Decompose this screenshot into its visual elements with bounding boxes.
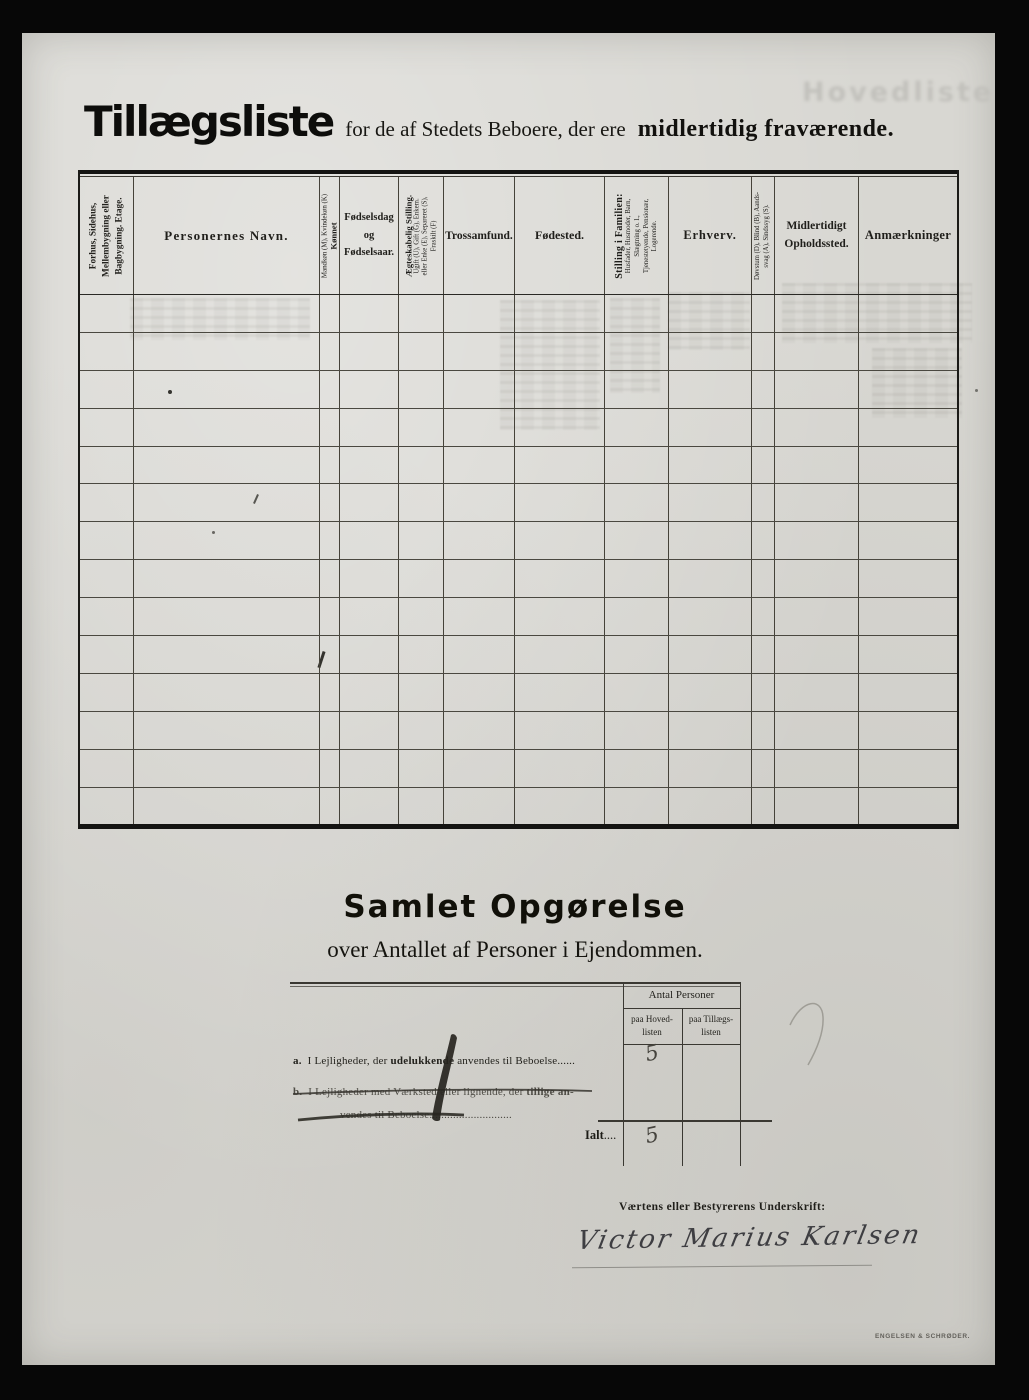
table-cell-empty	[444, 674, 515, 711]
header-line: Bagbygning. Etage.	[113, 197, 126, 274]
header-sub: Fraskilt (F)	[430, 220, 438, 251]
table-cell-empty	[320, 598, 340, 635]
table-cell-empty	[669, 598, 752, 635]
col-label-line: listen	[701, 1027, 721, 1037]
table-cell-empty	[859, 295, 957, 332]
table-cell-empty	[752, 522, 775, 559]
header-sub: Ugift (U), Gift (G), Enkem.	[413, 198, 421, 273]
table-cell-empty	[859, 598, 957, 635]
column-header-faith: Trossamfund.	[444, 177, 515, 294]
table-cell-empty	[515, 750, 605, 787]
title-word: Tillægsliste	[84, 97, 333, 146]
table-cell-empty	[605, 560, 669, 597]
table-cell-empty	[134, 598, 320, 635]
table-cell-empty	[752, 674, 775, 711]
col-label-line: paa Tillægs-	[689, 1014, 733, 1024]
table-cell-empty	[752, 788, 775, 825]
table-cell-empty	[859, 371, 957, 408]
table-cell-empty	[399, 333, 444, 370]
table-cell-empty	[752, 712, 775, 749]
row-b-prefix: b.	[293, 1086, 302, 1098]
table-cell-empty	[134, 484, 320, 521]
table-cell-empty	[605, 522, 669, 559]
table-cell-empty	[515, 560, 605, 597]
header-sub: svag (A), Sindssyg (S).	[763, 204, 772, 267]
table-cell-empty	[444, 636, 515, 673]
table-cell-empty	[320, 447, 340, 484]
header-sub: Døvstum (D), Blind (B), Aands-	[754, 192, 763, 280]
column-header-occupation: Erhverv.	[669, 177, 752, 294]
table-cell-empty	[320, 712, 340, 749]
header-label: Personernes Navn.	[164, 228, 288, 244]
table-row-empty	[80, 371, 957, 409]
table-cell-empty	[80, 636, 134, 673]
table-cell-empty	[752, 560, 775, 597]
table-cell-empty	[340, 598, 399, 635]
table-cell-empty	[515, 295, 605, 332]
table-cell-empty	[80, 598, 134, 635]
census-table: Forhus, Sidehus, Mellembygning eller Bag…	[78, 170, 959, 829]
header-main: Stilling i Familien:	[613, 193, 624, 278]
col-label-line: listen	[642, 1027, 662, 1037]
table-cell-empty	[340, 788, 399, 825]
form-page: Hovedliste Tillægsliste for de af Stedet…	[22, 33, 995, 1365]
col-label-line: paa Hoved-	[631, 1014, 673, 1024]
row-a-text: anvendes til Beboelse	[454, 1055, 557, 1067]
total-dots: ....	[604, 1128, 617, 1142]
table-cell-empty	[752, 333, 775, 370]
table-cell-empty	[515, 409, 605, 446]
header-line: Midlertidigt	[784, 218, 848, 235]
table-cell-empty	[669, 712, 752, 749]
table-cell-empty	[340, 447, 399, 484]
column-header-temporary-location: Midlertidigt Opholdssted.	[775, 177, 859, 294]
table-cell-empty	[775, 333, 859, 370]
table-cell-empty	[399, 371, 444, 408]
table-cell-empty	[752, 409, 775, 446]
row-b-text: I Lejligheder med Værksted eller lignend…	[308, 1086, 526, 1098]
table-cell-empty	[340, 333, 399, 370]
table-row-empty	[80, 750, 957, 788]
table-row-empty	[80, 447, 957, 485]
header-sub: Mandkøn (M), Kvindekøn (K)	[321, 193, 328, 277]
signature-label: Værtens eller Bestyrerens Underskrift:	[619, 1201, 826, 1213]
header-sub: Slægtning o. l.,	[633, 215, 642, 256]
summary-table-line	[740, 982, 741, 1166]
ink-speck	[975, 389, 978, 392]
table-cell-empty	[775, 750, 859, 787]
table-cell-empty	[134, 333, 320, 370]
table-cell-empty	[80, 295, 134, 332]
table-cell-empty	[134, 788, 320, 825]
table-cell-empty	[399, 598, 444, 635]
table-cell-empty	[320, 674, 340, 711]
table-cell-empty	[775, 598, 859, 635]
table-cell-empty	[752, 371, 775, 408]
table-cell-empty	[859, 712, 957, 749]
table-cell-empty	[320, 484, 340, 521]
table-cell-empty	[80, 333, 134, 370]
table-cell-empty	[320, 560, 340, 597]
total-word: Ialt	[585, 1128, 604, 1142]
table-cell-empty	[859, 560, 957, 597]
table-cell-empty	[775, 447, 859, 484]
table-cell-empty	[752, 636, 775, 673]
table-cell-empty	[444, 788, 515, 825]
summary-subheading: over Antallet af Personer i Ejendommen.	[290, 937, 740, 963]
table-row-empty	[80, 788, 957, 825]
table-cell-empty	[605, 788, 669, 825]
table-cell-empty	[80, 674, 134, 711]
header-line: og	[344, 227, 394, 245]
summary-row-b-line2: vendes til Beboelse.....................…	[340, 1109, 512, 1121]
table-cell-empty	[859, 674, 957, 711]
table-cell-empty	[515, 712, 605, 749]
table-cell-empty	[80, 409, 134, 446]
table-cell-empty	[515, 447, 605, 484]
table-cell-empty	[444, 409, 515, 446]
table-cell-empty	[320, 522, 340, 559]
table-cell-empty	[669, 560, 752, 597]
table-cell-empty	[515, 522, 605, 559]
table-cell-empty	[134, 522, 320, 559]
header-sub: Husfader, Husmoder, Barn,	[624, 198, 633, 272]
table-row-empty	[80, 409, 957, 447]
table-row-empty	[80, 484, 957, 522]
table-cell-empty	[775, 788, 859, 825]
column-header-birthplace: Fødested.	[515, 177, 605, 294]
header-label: Erhverv.	[683, 228, 736, 243]
table-cell-empty	[752, 750, 775, 787]
table-cell-empty	[80, 788, 134, 825]
table-cell-empty	[775, 484, 859, 521]
table-cell-empty	[399, 522, 444, 559]
table-cell-empty	[340, 371, 399, 408]
table-cell-empty	[669, 788, 752, 825]
table-cell-empty	[775, 371, 859, 408]
summary-heading: Samlet Opgørelse	[290, 889, 740, 925]
table-cell-empty	[775, 295, 859, 332]
header-label: Trossamfund.	[445, 230, 513, 242]
table-cell-empty	[134, 636, 320, 673]
column-header-sex: Mandkøn (M), Kvindekøn (K) Kønnet	[320, 177, 340, 294]
table-cell-empty	[320, 371, 340, 408]
table-cell-empty	[775, 409, 859, 446]
table-cell-empty	[399, 447, 444, 484]
table-cell-empty	[399, 712, 444, 749]
row-b-bold: tillige an-	[526, 1086, 574, 1098]
table-cell-empty	[80, 750, 134, 787]
table-cell-empty	[399, 409, 444, 446]
table-cell-empty	[134, 674, 320, 711]
table-cell-empty	[444, 750, 515, 787]
table-cell-empty	[320, 636, 340, 673]
table-cell-empty	[399, 636, 444, 673]
table-cell-empty	[605, 295, 669, 332]
table-cell-empty	[80, 484, 134, 521]
table-cell-empty	[340, 712, 399, 749]
table-cell-empty	[80, 522, 134, 559]
table-cell-empty	[669, 674, 752, 711]
table-row-empty	[80, 636, 957, 674]
total-rule	[598, 1120, 772, 1122]
table-cell-empty	[752, 598, 775, 635]
table-cell-empty	[340, 484, 399, 521]
table-cell-empty	[444, 447, 515, 484]
table-cell-empty	[859, 333, 957, 370]
header-main: Kønnet	[328, 222, 338, 249]
header-line: Fødselsdag	[344, 209, 394, 227]
header-label: Anmærkninger	[865, 228, 951, 243]
table-cell-empty	[80, 712, 134, 749]
summary-row-a: a.I Lejligheder, der udelukkende anvende…	[293, 1055, 575, 1067]
header-sub: Tjenestetyende, Pensionær,	[642, 198, 651, 272]
column-header-remarks: Anmærkninger	[859, 177, 957, 294]
table-row-empty	[80, 333, 957, 371]
table-cell-empty	[605, 333, 669, 370]
table-cell-empty	[859, 750, 957, 787]
table-cell-empty	[605, 636, 669, 673]
table-cell-empty	[515, 636, 605, 673]
header-main: Ægteskabelig Stilling.	[403, 194, 413, 276]
table-cell-empty	[515, 333, 605, 370]
column-header-birth-date: Fødselsdag og Fødselsaar.	[340, 177, 399, 294]
table-cell-empty	[399, 674, 444, 711]
row-a-bold: udelukkende	[390, 1055, 454, 1067]
table-cell-empty	[859, 484, 957, 521]
table-cell-empty	[859, 788, 957, 825]
table-row-empty	[80, 674, 957, 712]
summary-col-hovedlisten: paa Hoved- listen	[623, 1013, 681, 1038]
table-cell-empty	[444, 371, 515, 408]
table-cell-empty	[134, 371, 320, 408]
table-cell-empty	[320, 788, 340, 825]
table-cell-empty	[399, 484, 444, 521]
table-cell-empty	[444, 560, 515, 597]
table-cell-empty	[669, 447, 752, 484]
table-cell-empty	[515, 371, 605, 408]
table-cell-empty	[340, 674, 399, 711]
table-cell-empty	[80, 560, 134, 597]
row-a-text: I Lejligheder, der	[308, 1055, 391, 1067]
table-cell-empty	[444, 333, 515, 370]
table-cell-empty	[340, 560, 399, 597]
column-header-marital-status: Ægteskabelig Stilling. Ugift (U), Gift (…	[399, 177, 444, 294]
summary-count-header: Antal Personer	[623, 989, 740, 1001]
table-cell-empty	[134, 447, 320, 484]
table-cell-empty	[340, 636, 399, 673]
table-cell-empty	[859, 409, 957, 446]
table-cell-empty	[320, 295, 340, 332]
table-cell-empty	[669, 750, 752, 787]
row-a-prefix: a.	[293, 1055, 302, 1067]
table-cell-empty	[605, 674, 669, 711]
table-cell-empty	[320, 333, 340, 370]
table-cell-empty	[669, 371, 752, 408]
table-cell-empty	[515, 674, 605, 711]
table-cell-empty	[605, 598, 669, 635]
table-cell-empty	[320, 409, 340, 446]
table-cell-empty	[669, 636, 752, 673]
table-cell-empty	[134, 295, 320, 332]
table-cell-empty	[859, 522, 957, 559]
table-row-empty	[80, 598, 957, 636]
summary-table-line	[623, 982, 624, 1166]
printer-mark: ENGELSEN & SCHRØDER.	[875, 1333, 970, 1340]
table-cell-empty	[775, 560, 859, 597]
table-cell-empty	[134, 712, 320, 749]
table-row-empty	[80, 712, 957, 750]
scanned-census-form: { "document": { "title_main": "Tillægsli…	[0, 0, 1029, 1400]
table-cell-empty	[515, 484, 605, 521]
table-cell-empty	[340, 522, 399, 559]
header-sub: Logerende.	[651, 220, 660, 251]
table-cell-empty	[752, 484, 775, 521]
table-cell-empty	[605, 484, 669, 521]
table-cell-empty	[669, 522, 752, 559]
table-cell-empty	[775, 636, 859, 673]
table-cell-empty	[515, 788, 605, 825]
table-cell-empty	[320, 750, 340, 787]
table-cell-empty	[399, 295, 444, 332]
table-cell-empty	[605, 447, 669, 484]
table-cell-empty	[752, 447, 775, 484]
handwritten-count-total: 5	[630, 1119, 674, 1151]
row-b-text: vendes til Beboelse	[340, 1109, 429, 1121]
table-cell-empty	[399, 750, 444, 787]
table-cell-empty	[859, 447, 957, 484]
title-emphasis-text: midlertidig fraværende.	[638, 116, 894, 143]
header-label: Fødested.	[535, 228, 584, 243]
title-middle-text: for de af Stedets Beboere, der ere	[345, 117, 625, 142]
column-header-person-name: Personernes Navn.	[134, 177, 320, 294]
table-cell-empty	[444, 295, 515, 332]
table-cell-empty	[775, 712, 859, 749]
table-cell-empty	[859, 636, 957, 673]
summary-row-b-line1: b.I Lejligheder med Værksted eller ligne…	[293, 1086, 574, 1098]
table-cell-empty	[340, 295, 399, 332]
table-cell-empty	[605, 371, 669, 408]
row-a-dots: ......	[557, 1055, 575, 1067]
table-cell-empty	[669, 295, 752, 332]
table-header-row: Forhus, Sidehus, Mellembygning eller Bag…	[80, 177, 957, 295]
pen-squiggle-faint	[790, 1004, 823, 1065]
header-line: Forhus, Sidehus,	[87, 202, 100, 268]
table-row-empty	[80, 295, 957, 333]
column-header-building: Forhus, Sidehus, Mellembygning eller Bag…	[80, 177, 134, 294]
table-cell-empty	[134, 409, 320, 446]
summary-table-line	[682, 1008, 683, 1166]
table-cell-empty	[752, 295, 775, 332]
table-cell-empty	[399, 560, 444, 597]
table-cell-empty	[444, 712, 515, 749]
table-cell-empty	[80, 447, 134, 484]
table-cell-empty	[605, 409, 669, 446]
pen-stroke-bold	[432, 1034, 457, 1121]
column-header-disability: Døvstum (D), Blind (B), Aands- svag (A),…	[752, 177, 775, 294]
summary-rule	[290, 982, 740, 984]
table-cell-empty	[444, 484, 515, 521]
page-title: Tillægsliste for de af Stedets Beboere, …	[84, 97, 894, 146]
table-cell-empty	[669, 484, 752, 521]
header-line: Opholdssted.	[784, 236, 848, 253]
table-cell-empty	[515, 598, 605, 635]
table-cell-empty	[775, 674, 859, 711]
header-sub: eller Enke (E), Separeret (S),	[422, 196, 430, 275]
table-cell-empty	[340, 409, 399, 446]
handwritten-count-a: 5	[630, 1037, 674, 1069]
summary-rule-thin	[290, 986, 740, 987]
table-cell-empty	[399, 788, 444, 825]
table-cell-empty	[605, 750, 669, 787]
header-line: Fødselsaar.	[344, 244, 394, 262]
handwritten-signature: Victor Marius Karlsen	[574, 1220, 924, 1256]
table-cell-empty	[340, 750, 399, 787]
table-cell-empty	[444, 598, 515, 635]
table-cell-empty	[444, 522, 515, 559]
total-label: Ialt....	[585, 1128, 616, 1143]
table-cell-empty	[775, 522, 859, 559]
table-cell-empty	[669, 333, 752, 370]
table-cell-empty	[134, 750, 320, 787]
table-row-empty	[80, 560, 957, 598]
summary-col-tillaegslisten: paa Tillægs- listen	[682, 1013, 740, 1038]
header-line: Mellembygning eller	[100, 195, 113, 277]
row-b-dots: ............................	[429, 1109, 512, 1121]
table-cell-empty	[134, 560, 320, 597]
table-cell-empty	[80, 371, 134, 408]
table-cell-empty	[669, 409, 752, 446]
column-header-family-position: Stilling i Familien: Husfader, Husmoder,…	[605, 177, 669, 294]
table-cell-empty	[605, 712, 669, 749]
table-row-empty	[80, 522, 957, 560]
signature-underline	[572, 1265, 872, 1269]
table-body	[80, 295, 957, 824]
